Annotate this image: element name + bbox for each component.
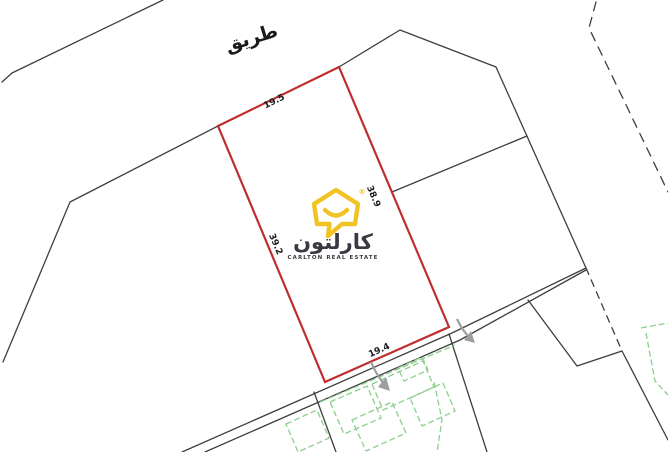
dimension-label-left: 39.2: [266, 232, 284, 256]
building-edge: [641, 323, 668, 328]
boundary-line-east-lower: [622, 351, 668, 440]
building-footprint: [352, 402, 406, 451]
dashed-boundary-top-right: [589, 2, 668, 192]
boundary-line-top-left: [2, 0, 163, 82]
building-edge: [646, 333, 668, 395]
plot-outline: [218, 67, 449, 382]
road-edge-upper: [182, 268, 586, 452]
parcel-divider-line: [392, 136, 527, 192]
brand-name-arabic: كارلتون: [293, 230, 374, 254]
road-label: طريق: [222, 20, 280, 57]
boundary-line-left: [3, 126, 218, 362]
road-edge-lower: [205, 270, 586, 452]
map-labels: طريق 19.5 38.9 39.2 19.4: [222, 20, 391, 360]
dimension-label-right: 38.9: [364, 184, 382, 208]
side-boundary-b: [449, 334, 487, 452]
logo-smile: [325, 210, 347, 216]
plot-outline-group: [218, 67, 449, 382]
cadastral-plot-map: طريق 19.5 38.9 39.2 19.4 ® كارلتون CARLT…: [0, 0, 668, 452]
boundary-line-east: [339, 30, 586, 268]
brand-name-english: CARLTON REAL ESTATE: [287, 255, 378, 261]
dimension-label-top: 19.5: [262, 93, 286, 112]
building-footprint: [410, 383, 455, 426]
registered-mark: ®: [359, 188, 366, 196]
brand-logo: ® كارلتون CARLTON REAL ESTATE: [287, 188, 378, 261]
boundary-line-east-dashed: [586, 268, 622, 351]
southeast-parcel-line: [528, 300, 622, 366]
logo-text-group: كارلتون CARLTON REAL ESTATE: [287, 230, 378, 261]
building-footprints: [286, 323, 668, 452]
